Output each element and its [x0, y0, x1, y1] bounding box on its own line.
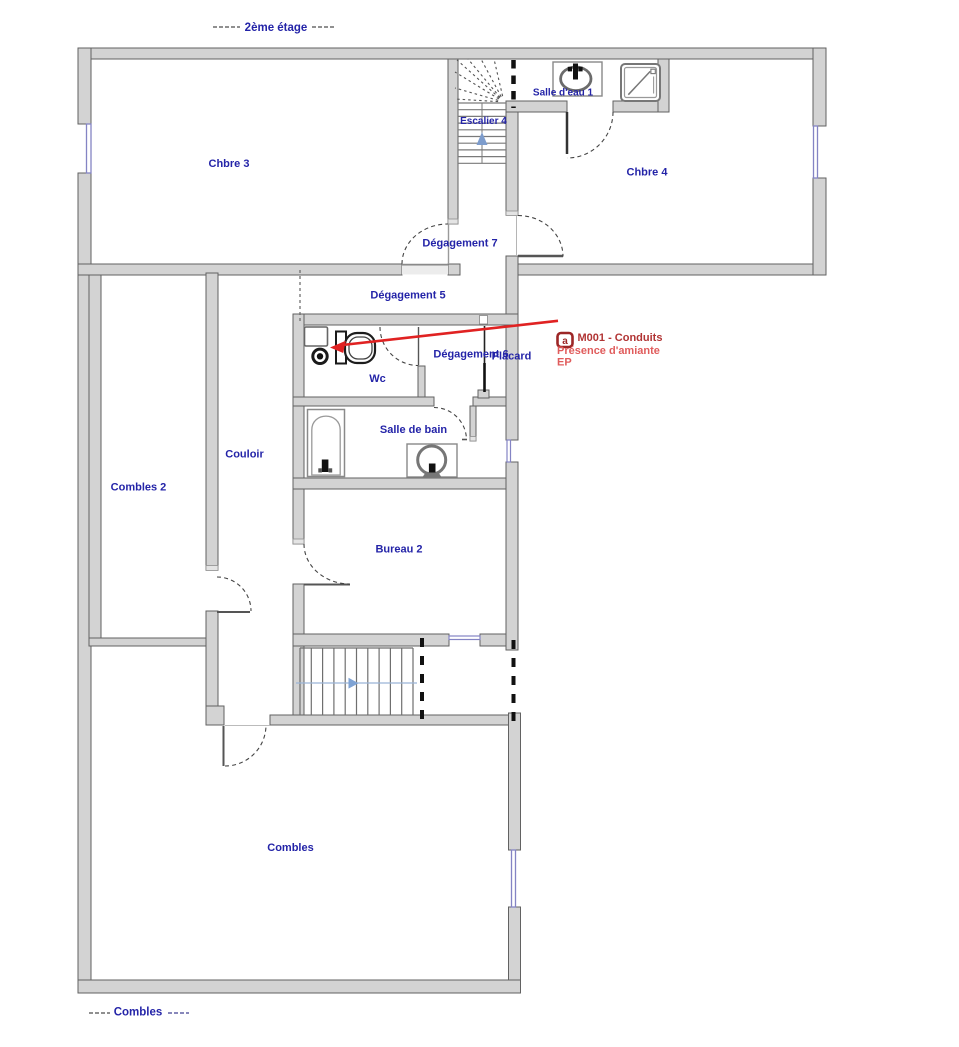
svg-text:Bureau 2: Bureau 2 [375, 544, 422, 556]
svg-text:Dégagement 7: Dégagement 7 [422, 238, 497, 250]
svg-text:2ème étage: 2ème étage [245, 22, 308, 34]
svg-text:EP: EP [557, 357, 572, 369]
svg-text:Couloir: Couloir [225, 449, 264, 461]
svg-text:Combles: Combles [114, 1007, 163, 1019]
svg-text:Escalier 4: Escalier 4 [460, 116, 507, 127]
svg-text:Chbre 3: Chbre 3 [209, 158, 250, 170]
svg-text:Présence d'amiante: Présence d'amiante [557, 345, 660, 357]
svg-text:Combles 2: Combles 2 [111, 482, 167, 494]
svg-text:Placard: Placard [492, 351, 532, 363]
svg-text:Salle d'eau 1: Salle d'eau 1 [533, 88, 594, 99]
svg-text:M001 - Conduits: M001 - Conduits [578, 332, 663, 344]
svg-text:Wc: Wc [369, 373, 386, 385]
svg-text:Salle de bain: Salle de bain [380, 424, 448, 436]
svg-text:Dégagement 5: Dégagement 5 [370, 290, 445, 302]
svg-text:Chbre 4: Chbre 4 [627, 167, 669, 179]
svg-text:Combles: Combles [267, 842, 313, 854]
